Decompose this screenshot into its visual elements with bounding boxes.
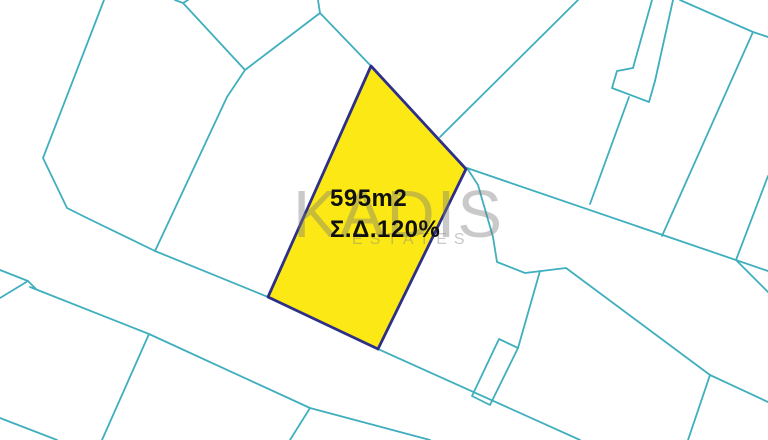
boundary-line <box>633 0 652 68</box>
boundary-line <box>688 375 710 440</box>
boundary-line <box>680 0 768 37</box>
boundary-line <box>736 176 768 260</box>
boundary-line <box>155 251 268 297</box>
coefficient-label: Σ.Δ.120% <box>330 214 440 245</box>
boundary-line <box>175 0 188 3</box>
boundary-line <box>467 168 768 402</box>
boundary-line <box>662 32 753 236</box>
area-label: 595m2 <box>330 183 440 214</box>
boundary-line <box>440 0 578 137</box>
boundary-line <box>467 168 768 271</box>
boundary-line <box>612 68 655 102</box>
boundary-line <box>245 13 320 70</box>
boundary-line <box>290 408 310 440</box>
boundary-line <box>43 0 155 251</box>
boundary-line <box>378 349 580 440</box>
boundary-line <box>590 97 629 204</box>
boundary-line <box>155 70 245 251</box>
boundary-line <box>518 271 540 348</box>
boundary-line <box>0 270 28 298</box>
boundary-line <box>183 3 245 70</box>
parcel-labels: 595m2 Σ.Δ.120% <box>330 183 440 245</box>
cadastral-map: KADIS ESTATES 595m2 Σ.Δ.120% <box>0 0 768 440</box>
boundary-line <box>318 0 320 13</box>
boundary-line <box>102 334 149 440</box>
boundary-line <box>0 418 57 440</box>
boundary-line <box>320 13 371 66</box>
boundary-line <box>655 0 673 81</box>
